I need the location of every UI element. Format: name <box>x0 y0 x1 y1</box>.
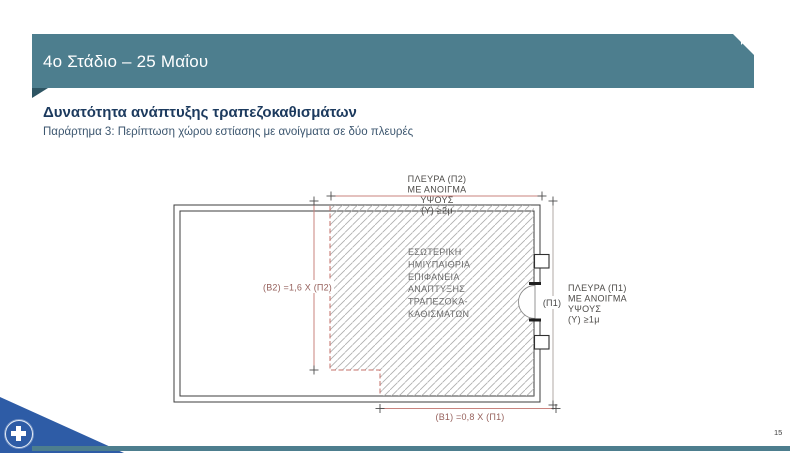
seating-area-label-line: ΕΠΙΦΑΝΕΙΑ <box>408 272 460 282</box>
side-p2-label-line: ΥΨΟΥΣ <box>420 195 453 205</box>
door-jamb-bottom <box>529 319 541 322</box>
side-p1-label: ΠΛΕΥΡΑ (Π1) ΜΕ ΑΝΟΙΓΜΑ ΥΨΟΥΣ (Υ) ≥1μ <box>568 283 627 325</box>
dim-b1-label: (Β1) =0,8 Χ (Π1) <box>436 412 505 422</box>
seating-area-label-line: ΗΜΙΥΠΑΙΘΡΙΑ <box>408 259 470 269</box>
side-p1-label-line: (Υ) ≥1μ <box>568 315 600 325</box>
floor-plan-diagram: ΠΛΕΥΡΑ (Π2) ΜΕ ΑΝΟΙΓΜΑ ΥΨΟΥΣ (Υ) ≥2μ ΕΣΩ… <box>0 0 806 453</box>
bottom-accent-bar <box>32 446 790 451</box>
side-p1-label-line: ΥΨΟΥΣ <box>568 304 601 314</box>
door-jamb-top <box>529 282 541 285</box>
side-p2-label-line: (Υ) ≥2μ <box>421 206 453 216</box>
slide: 4ο Στάδιο – 25 Μαΐου Δυνατότητα ανάπτυξη… <box>0 0 806 453</box>
page-number: 15 <box>774 428 782 437</box>
emblem-cross-icon <box>16 426 21 441</box>
seating-area-label-line: ΚΑΘΙΣΜΑΤΩΝ <box>408 309 469 319</box>
seating-area-label-line: ΑΝΑΠΤΥΞΗΣ <box>408 284 465 294</box>
window-marker-bottom <box>535 336 550 350</box>
side-p2-label-line: ΜΕ ΑΝΟΙΓΜΑ <box>408 185 467 195</box>
side-p1-label-line: ΜΕ ΑΝΟΙΓΜΑ <box>568 294 627 304</box>
seating-area-label-line: ΕΣΩΤΕΡΙΚΗ <box>408 247 462 257</box>
dim-p1-label: (Π1) <box>543 298 561 308</box>
dim-b2-label: (Β2) =1,6 Χ (Π2) <box>263 283 332 293</box>
seating-area-label-line: ΤΡΑΠΕΖΟΚΑ- <box>408 297 468 307</box>
window-marker-top <box>535 255 550 269</box>
side-p1-label-line: ΠΛΕΥΡΑ (Π1) <box>568 283 627 293</box>
side-p2-label-line: ΠΛΕΥΡΑ (Π2) <box>408 174 467 184</box>
